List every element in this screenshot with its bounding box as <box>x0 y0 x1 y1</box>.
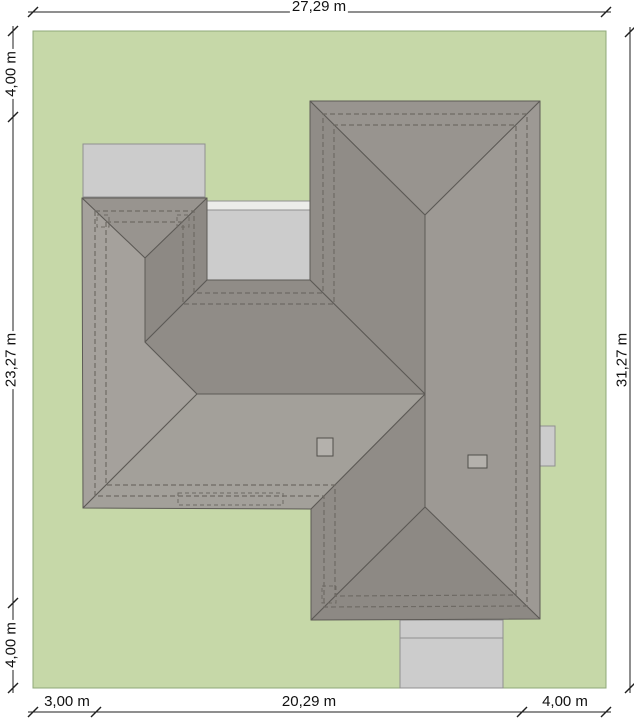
dim-bottom-right-label: 4,00 m <box>540 694 590 709</box>
dim-right-label: 31,27 m <box>615 331 630 389</box>
site-plan-drawing <box>0 0 634 719</box>
dim-left-bottom-label: 4,00 m <box>4 620 19 670</box>
dim-bottom-center-label: 20,29 m <box>280 694 338 709</box>
site-plan: 27,29 m 4,00 m 23,27 m 4,00 m 31,27 m 3,… <box>0 0 634 719</box>
terrace <box>207 210 310 280</box>
dim-left-middle-label: 23,27 m <box>4 331 19 389</box>
garage-forecourt <box>83 144 205 197</box>
driveway <box>400 620 503 688</box>
chimney-west <box>317 438 333 456</box>
dim-top-label: 27,29 m <box>290 0 348 14</box>
chimney-east <box>468 455 487 468</box>
dim-left-top-label: 4,00 m <box>4 49 19 99</box>
dim-bottom-left-label: 3,00 m <box>42 694 92 709</box>
